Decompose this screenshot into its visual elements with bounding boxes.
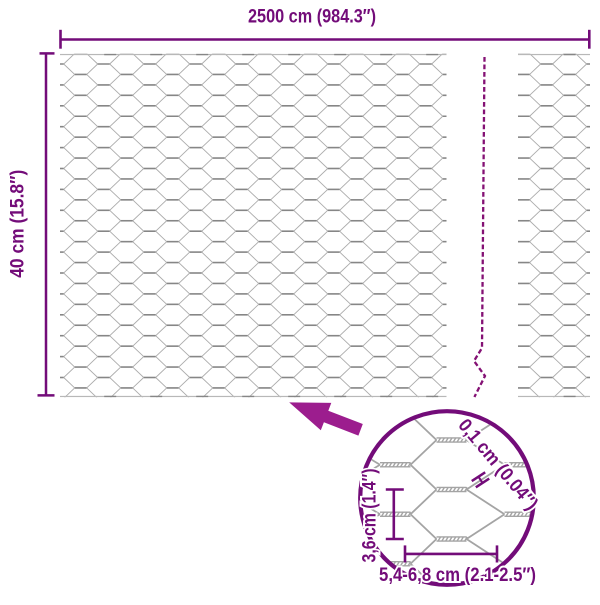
svg-text:40 cm (15.8″): 40 cm (15.8″) [8, 170, 29, 278]
svg-text:2500 cm (984.3″): 2500 cm (984.3″) [248, 6, 376, 28]
svg-text:5,4-6,8 cm (2.1-2.5″): 5,4-6,8 cm (2.1-2.5″) [379, 564, 536, 586]
svg-text:3,6 cm (1.4″): 3,6 cm (1.4″) [360, 469, 381, 563]
